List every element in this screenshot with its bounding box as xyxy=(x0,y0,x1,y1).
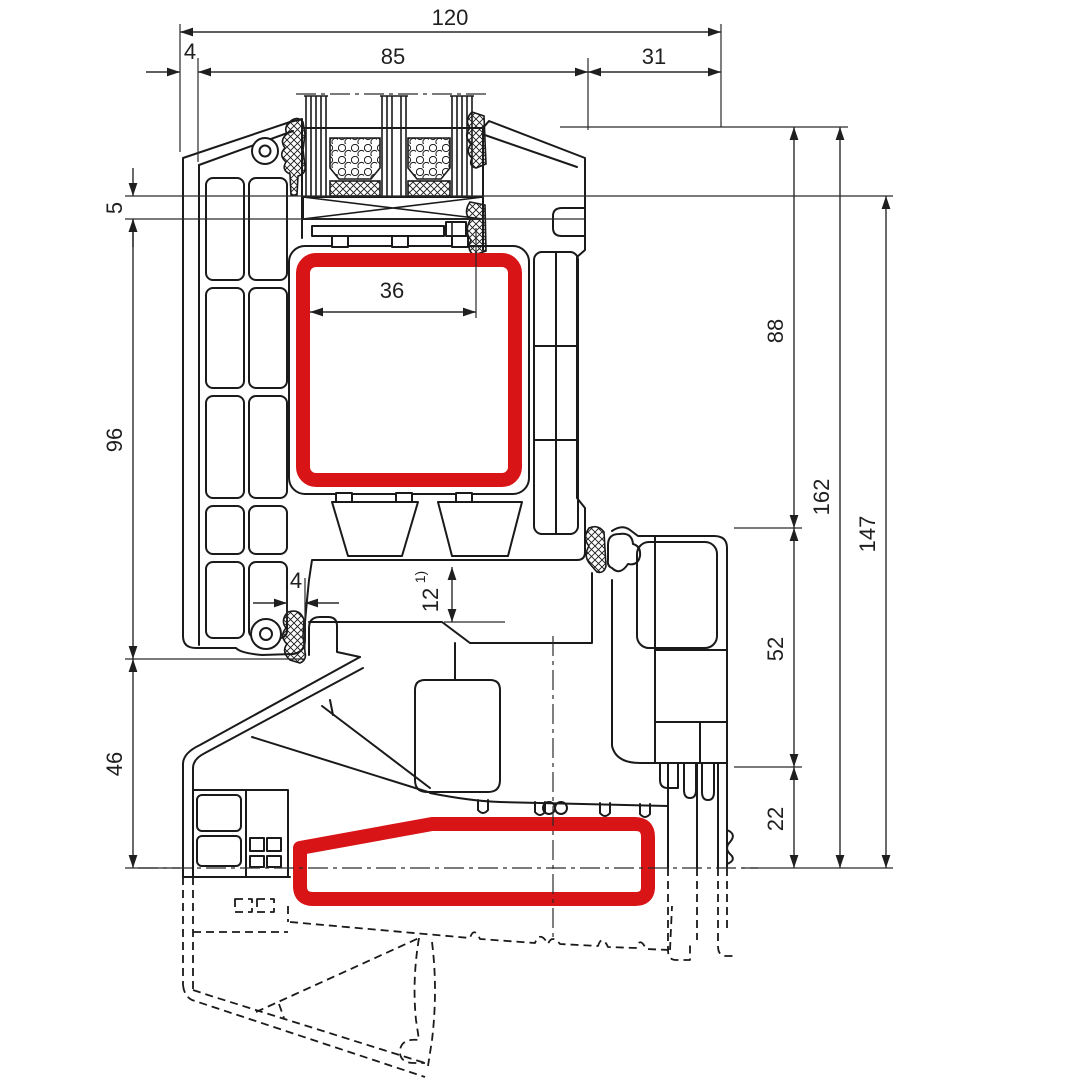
dim-label-rebate-height: 147 xyxy=(855,516,880,553)
glazing-bead-knob xyxy=(252,138,278,164)
frame-rebate-ledge xyxy=(309,573,592,643)
dim-label-steel-width: 36 xyxy=(380,278,404,303)
dim-label-upper-height: 88 xyxy=(763,319,788,343)
drawing-canvas: 120 85 31 4 5 96 46 36 4 12 1) 88 52 22 … xyxy=(0,0,1080,1080)
dim-label-sash-width: 85 xyxy=(381,44,405,69)
gasket-frame xyxy=(586,527,607,573)
frame-clip-prongs xyxy=(684,763,714,800)
dim-label-seal-gap: 4 xyxy=(290,568,302,593)
dim-label-offset: 4 xyxy=(184,39,196,64)
dim-label-frame-width: 31 xyxy=(642,44,666,69)
dim-label-rebate-gap-footnote: 1) xyxy=(412,571,428,583)
frame-lower-leg xyxy=(415,680,500,792)
dim-label-seal-height: 5 xyxy=(102,202,127,214)
dim-label-lower-height: 52 xyxy=(763,637,788,661)
spacer-right xyxy=(408,138,450,179)
dim-label-overall-height: 162 xyxy=(809,479,834,516)
profile-geometry xyxy=(183,94,737,1077)
dim-label-sash-height: 96 xyxy=(102,428,127,452)
dim-label-total-width: 120 xyxy=(432,5,469,30)
dim-label-rebate-gap: 12 xyxy=(418,588,443,612)
steel-chamber-sill-highlight xyxy=(300,824,648,899)
frame-profile xyxy=(309,527,727,800)
dim-label-sill-step: 22 xyxy=(763,807,788,831)
dim-label-sill-height: 46 xyxy=(102,752,127,776)
spacer-left xyxy=(330,138,380,179)
frame-knob xyxy=(608,534,640,571)
technical-drawing: 120 85 31 4 5 96 46 36 4 12 1) 88 52 22 … xyxy=(0,0,1080,1080)
